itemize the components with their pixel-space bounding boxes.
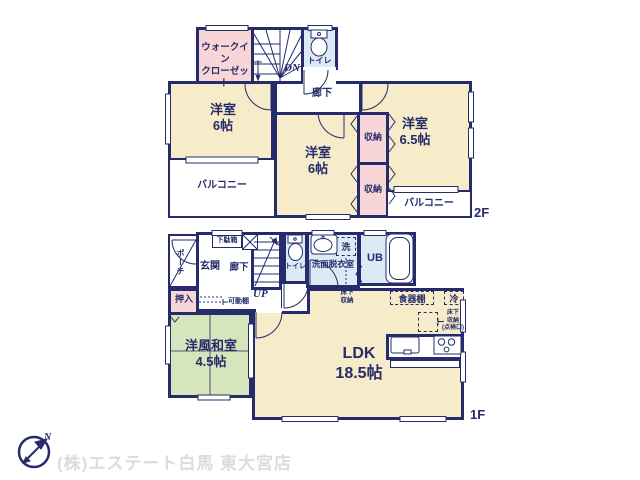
label-2f-walk-in-closet: ウォークイン クローゼット [198, 42, 252, 90]
label-1f-entrance: 玄関 [196, 261, 224, 274]
room-1f-toilet [283, 232, 308, 284]
room-2f-hall-connector [303, 67, 336, 84]
shoe-cabinet-x-box [242, 234, 258, 250]
label-1f-futon-closet: 押入 [170, 294, 198, 305]
label-1f-washroom: 洗面脱衣室 [306, 259, 360, 270]
room-1f-toilet-pocket [282, 284, 310, 314]
refrigerator-label: 冷 [449, 292, 458, 305]
label-1f-movable-shelf: 可動棚 [228, 298, 260, 307]
label-1f-underfloor-storage: 床下 収納 [334, 289, 360, 305]
label-2f-stairs-dn: DN [284, 62, 300, 76]
label-2f-balcony-left: バルコニー [180, 180, 264, 193]
label-1f-unit-bath: UB [362, 252, 388, 266]
company-name: (株)エステート白馬 東大宮店 [57, 449, 292, 474]
label-2f-bedroom-left: 洋室 6帖 [188, 102, 258, 135]
label-2f-closet-upper: 収納 [359, 132, 387, 143]
cupboard-label: 食器棚 [398, 292, 425, 305]
cupboard-box: 食器棚 [390, 291, 434, 305]
label-2f-tag: 2F [474, 205, 489, 220]
label-1f-porch: ポーチ [175, 242, 185, 282]
label-2f-closet-lower: 収納 [359, 184, 387, 195]
underfloor-hatch-box [418, 312, 438, 332]
label-1f-ldk: LDK 18.5帖 [316, 344, 402, 384]
label-1f-toilet: トイレ [283, 263, 308, 272]
label-1f-hallway: 廊下 [224, 262, 254, 274]
refrigerator-box: 冷 [444, 291, 464, 305]
compass-north-label: N [44, 432, 51, 445]
washer-box: 洗 [336, 237, 356, 256]
label-2f-toilet: トイレ [302, 56, 337, 66]
floor-plan: 食器棚 冷 洗 [0, 0, 640, 480]
label-1f-shoe-cabinet: 下駄箱 [212, 237, 242, 246]
washer-label: 洗 [341, 240, 350, 253]
label-1f-japanese-room: 洋風和室 4.5帖 [172, 338, 250, 371]
label-1f-underfloor-hatch: 床下 収納 (点検口) [440, 310, 466, 333]
label-2f-bedroom-right: 洋室 6.5帖 [384, 116, 446, 149]
label-2f-hallway: 廊下 [296, 88, 348, 101]
label-2f-bedroom-middle: 洋室 6帖 [285, 145, 351, 178]
label-2f-balcony-right: バルコニー [392, 198, 466, 211]
label-1f-tag: 1F [470, 407, 485, 422]
